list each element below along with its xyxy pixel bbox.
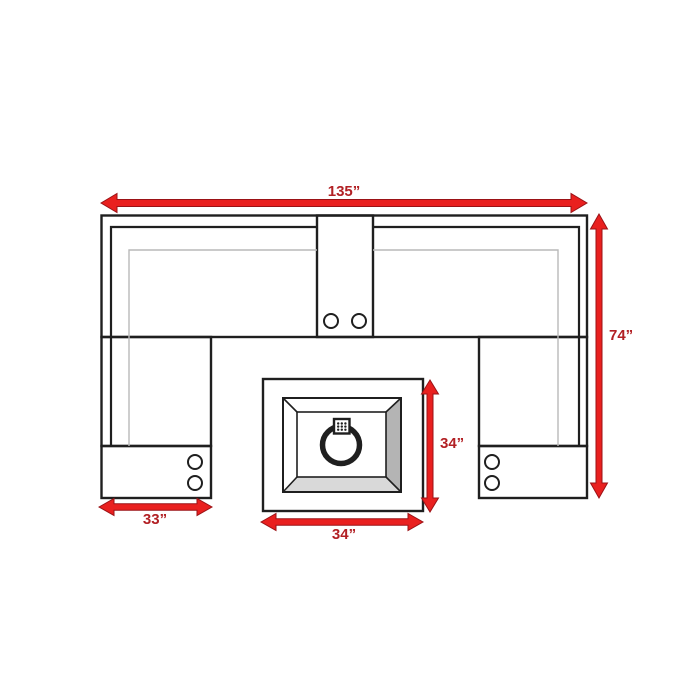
table-bevel-bottom bbox=[283, 477, 401, 492]
cupholder-icon bbox=[324, 314, 338, 328]
dimension-table-depth: 34” bbox=[422, 380, 465, 512]
dimension-overall-depth: 74” bbox=[591, 214, 634, 498]
dimension-left-console-width: 33” bbox=[99, 499, 212, 529]
cupholder-icon bbox=[188, 455, 202, 469]
cupholder-icon bbox=[485, 455, 499, 469]
dimension-label-table-depth: 34” bbox=[440, 435, 464, 452]
diagram-canvas: 135” 74” 33” 34” 34” bbox=[0, 0, 700, 700]
cupholder-icon bbox=[188, 476, 202, 490]
dimension-overall-width: 135” bbox=[101, 183, 587, 213]
sofa-left-arm bbox=[102, 337, 212, 446]
cushion-line-left bbox=[129, 250, 317, 446]
dimension-label-overall-width: 135” bbox=[328, 183, 361, 200]
dimension-table-width: 34” bbox=[261, 514, 423, 544]
fire-pit-table bbox=[263, 379, 423, 511]
arrow-vertical bbox=[591, 214, 608, 498]
dimension-label-left-console-width: 33” bbox=[143, 511, 167, 528]
sofa-top-band bbox=[102, 216, 588, 338]
table-bevel-corner bbox=[283, 398, 297, 412]
dimension-label-overall-depth: 74” bbox=[609, 327, 633, 344]
table-bevel-right bbox=[386, 398, 401, 492]
cupholder-icon bbox=[485, 476, 499, 490]
cupholder-icon bbox=[352, 314, 366, 328]
sectional-dimension-diagram: 135” 74” 33” 34” 34” bbox=[0, 0, 700, 700]
dimension-label-table-width: 34” bbox=[332, 526, 356, 543]
sofa-right-arm bbox=[479, 337, 587, 446]
sofa-outline bbox=[102, 216, 588, 499]
burner-icon bbox=[334, 419, 350, 434]
